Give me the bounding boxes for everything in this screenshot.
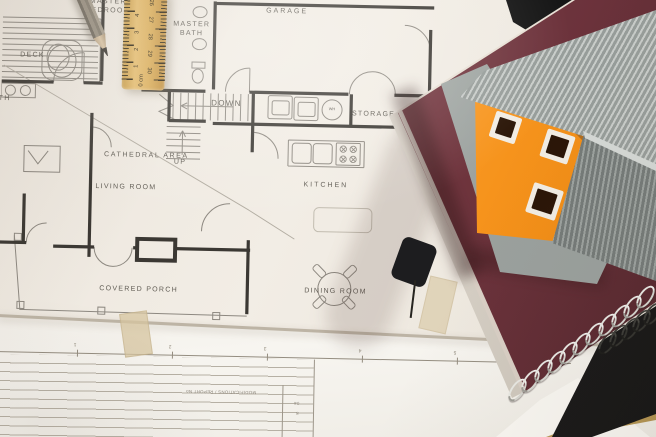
label-bath: BATH: [0, 95, 11, 102]
label-storage: STORAGE: [352, 110, 395, 118]
revision-title-block: MODIFICATIONS / REPORT No 04 8: [0, 354, 315, 437]
ruler-number: 1: [133, 65, 139, 68]
ruler-number: 29: [147, 50, 153, 57]
label-kitchen: KITCHEN: [303, 181, 348, 189]
label-up: UP: [174, 159, 186, 166]
revision-cell-text: 8: [295, 411, 298, 415]
label-master-bath: MASTER BATH: [169, 19, 215, 38]
ruler-number: 26: [148, 0, 154, 6]
ruler-number: 30: [146, 67, 152, 74]
revision-header-text: MODIFICATIONS / REPORT No: [186, 389, 256, 395]
label-water-heater: WH: [329, 107, 335, 111]
ruler-number: 27: [148, 16, 154, 23]
label-living-room: LIVING ROOM: [95, 183, 156, 191]
pencil-lead-tip: [102, 47, 110, 57]
ruler-number: 3: [134, 31, 140, 34]
revision-cell-text: 04: [294, 401, 300, 405]
fireplace: [137, 239, 175, 261]
ruler-number: 4: [135, 14, 141, 17]
ruler-cm-ticks: [122, 0, 136, 82]
photo-canvas: MODIFICATIONS / REPORT No 04 8 1 2 3 4 5…: [0, 0, 656, 437]
label-garage: GARAGE: [266, 8, 308, 16]
ruler-number: 28: [147, 33, 153, 40]
masking-tape: [119, 310, 153, 357]
ruler-number: 0 cm: [138, 74, 144, 87]
ruler-number: 2: [134, 48, 140, 51]
revision-table-column: [281, 385, 305, 437]
wooden-ruler: 5 4 3 2 1 0 cm 26 27 28 29 30: [121, 0, 167, 91]
label-deck: DECK: [20, 51, 45, 59]
label-down: DOWN: [211, 98, 242, 108]
